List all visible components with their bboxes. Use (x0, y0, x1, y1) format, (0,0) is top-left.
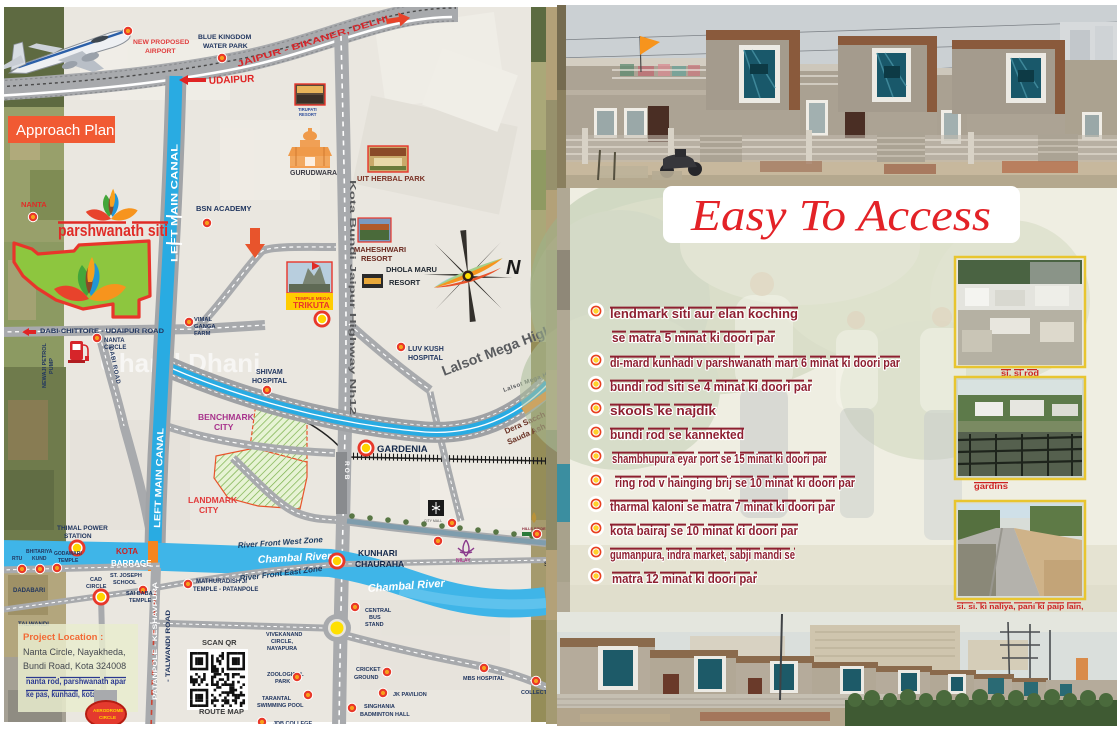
svg-text:parshwanath siti: parshwanath siti (58, 221, 168, 240)
svg-text:ring rod v hainging brij se 10: ring rod v hainging brij se 10 minat ki … (615, 476, 855, 490)
svg-text:SAI BABA: SAI BABA (126, 591, 153, 597)
svg-text:NEW PROPOSED: NEW PROPOSED (133, 39, 189, 46)
svg-text:CHAURAHA: CHAURAHA (355, 559, 404, 569)
svg-text:LEFT MAIN CANAL: LEFT MAIN CANAL (170, 143, 180, 262)
svg-text:Kota Bundi Jaipur Highway Nh12: Kota Bundi Jaipur Highway Nh12 (348, 180, 357, 416)
svg-text:HOSPITAL: HOSPITAL (252, 378, 288, 385)
svg-text:ke pas, kunhadi, kota: ke pas, kunhadi, kota (26, 690, 96, 699)
svg-text:CITY MALL: CITY MALL (424, 519, 442, 523)
svg-text:BARRAGE: BARRAGE (111, 559, 152, 568)
svg-text:- TALWANDI ROAD: - TALWANDI ROAD (166, 609, 172, 682)
svg-text:PARK: PARK (275, 679, 290, 685)
svg-text:GANGA: GANGA (194, 324, 216, 330)
svg-text:Nanta Circle, Nayakheda,: Nanta Circle, Nayakheda, (23, 647, 126, 657)
svg-text:UIT HERBAL PARK: UIT HERBAL PARK (357, 174, 426, 183)
svg-text:gardins: gardins (974, 482, 1009, 491)
svg-text:ST. JOSEPH: ST. JOSEPH (110, 573, 142, 579)
svg-text:SHIVAM: SHIVAM (256, 369, 283, 376)
svg-text:MATHURADISH JI: MATHURADISH JI (196, 579, 247, 585)
svg-text:PUMP: PUMP (49, 358, 55, 374)
svg-text:kota bairaj se 10 minat ki doo: kota bairaj se 10 minat ki doori par (610, 524, 798, 538)
svg-text:MAHESHWARI: MAHESHWARI (354, 245, 406, 254)
svg-text:TEMPLE: TEMPLE (58, 558, 79, 564)
svg-text:SWIMMING POOL: SWIMMING POOL (257, 703, 304, 709)
svg-text:RESORT: RESORT (389, 278, 421, 287)
svg-text:LUV KUSH: LUV KUSH (408, 346, 444, 353)
svg-text:Easy To Access: Easy To Access (690, 191, 991, 240)
svg-text:BSN ACADEMY: BSN ACADEMY (196, 204, 252, 213)
svg-text:Project Location :: Project Location : (23, 632, 103, 643)
svg-text:AERODROME: AERODROME (93, 708, 123, 713)
svg-text:CITY: CITY (199, 505, 219, 515)
svg-text:DABI-CHITTORE - UDAIPUR ROAD: DABI-CHITTORE - UDAIPUR ROAD (40, 329, 165, 335)
svg-text:NEWAJI PETROL: NEWAJI PETROL (42, 342, 48, 388)
svg-text:bundi rod se kannekted: bundi rod se kannekted (610, 428, 744, 442)
svg-text:TEMPLE - PATANPOLE: TEMPLE - PATANPOLE (193, 587, 258, 593)
svg-text:N: N (506, 257, 521, 279)
svg-text:ROB: ROB (343, 461, 350, 481)
svg-text:gumanpura, indra market, sabji: gumanpura, indra market, sabji mandi se (610, 548, 795, 562)
svg-text:RESORT: RESORT (361, 254, 393, 263)
svg-text:SINGHANIA: SINGHANIA (364, 704, 395, 710)
svg-text:CITY: CITY (214, 422, 234, 432)
svg-text:KUND: KUND (32, 556, 47, 562)
svg-text:PATANPOLE - KESHAVPURA: PATANPOLE - KESHAVPURA (152, 582, 159, 700)
svg-text:LANDMARK: LANDMARK (188, 495, 238, 505)
svg-text:VIVEKANAND: VIVEKANAND (266, 632, 302, 638)
svg-text:GROUND: GROUND (354, 675, 378, 681)
svg-text:TEMPLE: TEMPLE (129, 598, 152, 604)
svg-text:Bundi Road, Kota 324008: Bundi Road, Kota 324008 (23, 661, 126, 671)
svg-text:NILAY: NILAY (456, 558, 471, 564)
svg-text:VIMAL: VIMAL (194, 317, 212, 323)
svg-text:AIRPORT: AIRPORT (145, 48, 176, 55)
svg-text:BHITARIYA: BHITARIYA (26, 549, 53, 555)
svg-text:CIRCLE: CIRCLE (99, 715, 116, 720)
svg-text:WATER PARK: WATER PARK (203, 43, 248, 50)
svg-text:matra 12 minat ki doori par: matra 12 minat ki doori par (612, 572, 757, 586)
svg-text:NANTA: NANTA (21, 200, 47, 209)
svg-text:BLUE KINGDOM: BLUE KINGDOM (198, 34, 252, 41)
svg-text:TRIKUTA: TRIKUTA (293, 300, 330, 310)
svg-text:ROUTE MAP: ROUTE MAP (199, 707, 244, 716)
svg-text:BUS: BUS (369, 615, 381, 621)
svg-text:CENTRAL: CENTRAL (365, 608, 392, 614)
svg-text:SCAN QR: SCAN QR (202, 638, 237, 647)
svg-text:lendmark siti aur elan koching: lendmark siti aur elan koching (610, 307, 798, 321)
svg-text:skools ke najdik: skools ke najdik (610, 404, 716, 418)
svg-text:JK PAVILION: JK PAVILION (393, 692, 427, 698)
svg-text:shambhupura eyar port se 15 mi: shambhupura eyar port se 15 minat ki doo… (612, 452, 827, 466)
svg-text:STAND: STAND (365, 622, 384, 628)
svg-text:KUNHARI: KUNHARI (358, 548, 397, 558)
svg-text:CRICKET: CRICKET (356, 667, 381, 673)
svg-text:RTU: RTU (12, 556, 23, 562)
svg-text:BENCHMARK: BENCHMARK (198, 412, 255, 422)
svg-text:GURUDWARA: GURUDWARA (290, 170, 337, 177)
svg-text:bundi rod siti se 4 minat ki d: bundi rod siti se 4 minat ki doori par (610, 380, 812, 394)
svg-text:KOTA: KOTA (116, 547, 138, 556)
svg-text:MBS HOSPITAL: MBS HOSPITAL (463, 676, 505, 682)
svg-text:se matra 5 minat ki doori par: se matra 5 minat ki doori par (612, 331, 775, 345)
svg-text:SCHOOL: SCHOOL (113, 580, 137, 586)
svg-text:GARDENIA: GARDENIA (377, 444, 428, 455)
svg-text:DADABARI: DADABARI (13, 588, 45, 594)
svg-text:HOSPITAL: HOSPITAL (408, 355, 444, 362)
svg-text:STATION: STATION (64, 533, 92, 540)
svg-text:Approach Plan: Approach Plan (16, 122, 114, 139)
svg-text:CAD: CAD (90, 577, 102, 583)
svg-text:TARANTAL: TARANTAL (262, 696, 292, 702)
svg-text:FARM: FARM (194, 331, 211, 337)
svg-text:GODAWARI: GODAWARI (54, 551, 82, 557)
svg-text:NANTA: NANTA (104, 338, 125, 344)
svg-text:BADMINTON HALL: BADMINTON HALL (360, 712, 410, 718)
svg-text:THIMAL POWER: THIMAL POWER (57, 525, 108, 532)
svg-text:RESORT: RESORT (299, 112, 317, 117)
svg-text:CIRCLE,: CIRCLE, (271, 639, 293, 645)
svg-text:nanta rod, parshwanath apar: nanta rod, parshwanath apar (26, 677, 126, 686)
svg-text:tharmal kaloni se matra 7 mina: tharmal kaloni se matra 7 minat ki doori… (610, 500, 835, 514)
svg-text:DHOLA MARU: DHOLA MARU (386, 265, 437, 274)
svg-text:di-mard kunhadi v parshwanath: di-mard kunhadi v parshwanath mart 6 min… (610, 356, 900, 370)
svg-text:NAYAPURA: NAYAPURA (267, 646, 297, 652)
